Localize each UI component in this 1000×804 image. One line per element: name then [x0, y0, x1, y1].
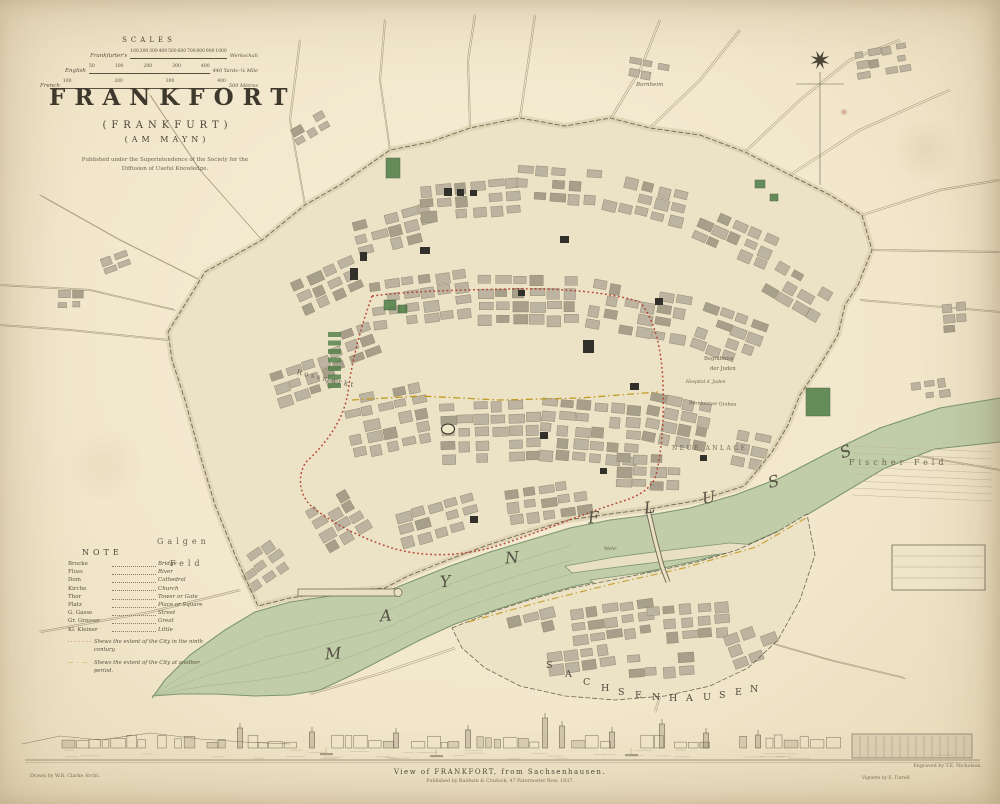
title-block: FRANKFORT (FRANKFURT) (AM MAYN) Publishe…: [40, 84, 290, 174]
district-letter-sachsenhausen: H: [669, 693, 678, 704]
scale-bar-label: English: [65, 68, 86, 74]
scale-bar: English50100200300400440 Yards–¼ Mile: [65, 65, 258, 74]
note-entry: FlussRiver: [68, 568, 216, 576]
label-begrabniss-2: der Juden: [710, 366, 736, 372]
label-begrabniss-1: Begräbniss: [704, 356, 733, 362]
wall-note: — · — ·Shews the extent of the City at a…: [68, 660, 216, 676]
label-galgen-feld-2: Feld: [170, 559, 204, 568]
label-hospital-juden: Hospital d. Juden: [686, 380, 726, 385]
district-letter-sachsenhausen: E: [735, 687, 743, 698]
note-entry: KircheChurch: [68, 585, 216, 593]
dotted-red-marker: ·········: [68, 639, 94, 655]
river-letter-mayn: Y: [439, 572, 451, 592]
district-letter-sachsenhausen: S: [618, 687, 626, 698]
scale-bar-label: Frankfurter's: [90, 53, 127, 59]
credit-drawn: Drawn by W.B. Clarke Archt.: [30, 774, 100, 779]
river-letter-mayn: N: [504, 548, 519, 568]
label-fischer-feld: Fischer Feld: [849, 458, 947, 467]
district-letter-sachsenhausen: N: [652, 692, 661, 703]
note-entry: PlatzPlace or Square: [68, 601, 216, 609]
scale-bar-unit: 440 Yards–¼ Mile: [213, 68, 258, 74]
note-entry: G. GasseStreet: [68, 609, 216, 617]
note-entry: Gr. GrosserGreat: [68, 617, 216, 625]
river-letter-fluss: F: [587, 508, 600, 528]
vignette-caption: View of FRANKFORT, from Sachsenhausen.: [330, 768, 670, 776]
district-letter-sachsenhausen: S: [719, 690, 727, 701]
district-letter-sachsenhausen: U: [703, 692, 712, 703]
label-wehr: Wehr: [604, 547, 616, 552]
publisher-imprint: Published under the Superintendence of t…: [80, 156, 250, 174]
map-sheet: SCALES Frankfurter's10020030040050060070…: [0, 0, 1000, 804]
district-letter-sachsenhausen: H: [601, 683, 610, 694]
credit-engraved: Engraved by T.E. Nicholson.: [913, 764, 982, 769]
district-letter-sachsenhausen: A: [565, 669, 573, 680]
district-letter-sachsenhausen: E: [635, 690, 643, 701]
river-letter-fluss: L: [643, 497, 656, 517]
district-letter-sachsenhausen: N: [750, 684, 759, 695]
label-neue-anlage: NEUE ANLAGE: [672, 445, 748, 452]
scale-block: SCALES Frankfurter's10020030040050060070…: [40, 36, 258, 89]
map-title-alt2: (AM MAYN): [40, 135, 290, 144]
wall-note: ·········Shews the extent of the City in…: [68, 639, 216, 655]
scale-bar-unit: Werkschuh: [230, 53, 258, 59]
credit-vignette: Vignette by E. Turrell.: [862, 776, 911, 781]
note-entry: ThorTower or Gate: [68, 593, 216, 601]
district-letter-sachsenhausen: C: [583, 677, 591, 688]
note-entries: BruckeBridgeFlussRiverDomCathedralKirche…: [68, 560, 216, 634]
vignette-panorama: [22, 713, 980, 763]
vignette-publisher: Published by Baldwin & Cradock, 47 Pater…: [330, 779, 670, 784]
map-title-alt: (FRANKFURT): [40, 120, 290, 131]
scales-heading: SCALES: [40, 36, 258, 44]
dash-dot-yellow-marker: — · — ·: [68, 660, 94, 676]
map-title: FRANKFORT: [40, 84, 290, 111]
label-galgen-feld-1: Galgen: [157, 537, 210, 546]
river-letter-mayn: M: [324, 643, 342, 663]
district-letter-sachsenhausen: S: [546, 660, 554, 671]
note-entry: DomCathedral: [68, 576, 216, 584]
compass-rose: [796, 51, 844, 185]
label-bornheim: Bornheim: [636, 82, 663, 88]
wall-notes: ·········Shews the extent of the City in…: [68, 639, 216, 676]
note-entry: Kl. KleinerLittle: [68, 626, 216, 634]
note-heading: NOTE: [82, 548, 216, 557]
scale-bar: Frankfurter's100200300400500600700800900…: [90, 50, 258, 59]
district-letter-sachsenhausen: A: [686, 693, 694, 704]
river-letter-mayn: A: [379, 606, 392, 626]
